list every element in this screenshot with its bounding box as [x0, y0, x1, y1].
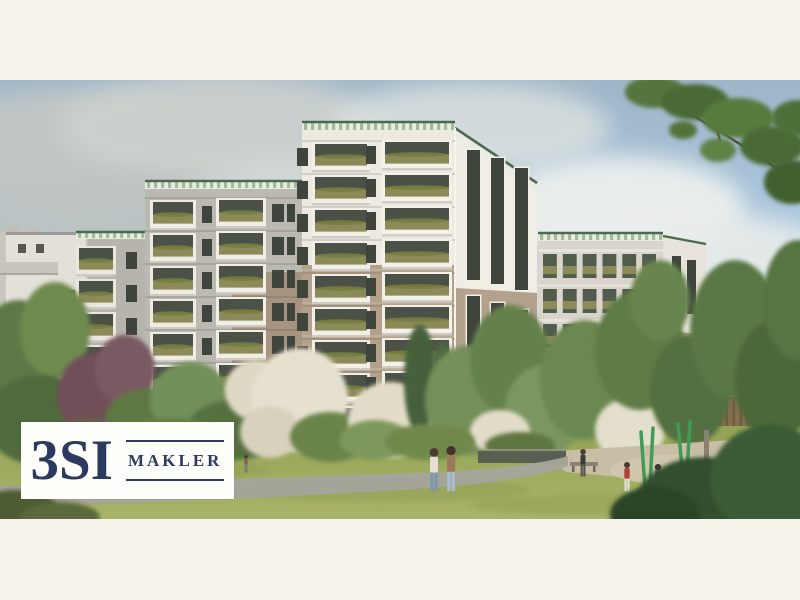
letterbox-bottom: [0, 519, 800, 600]
broker-logo-watermark: 3SI MAKLER: [21, 422, 234, 499]
logo-brand-text: 3SI: [31, 435, 113, 486]
architectural-rendering: 3SI MAKLER: [0, 80, 800, 519]
real-estate-listing-photo: 3SI MAKLER: [0, 0, 800, 600]
letterbox-top: [0, 0, 800, 80]
logo-sub-text: MAKLER: [126, 440, 225, 481]
